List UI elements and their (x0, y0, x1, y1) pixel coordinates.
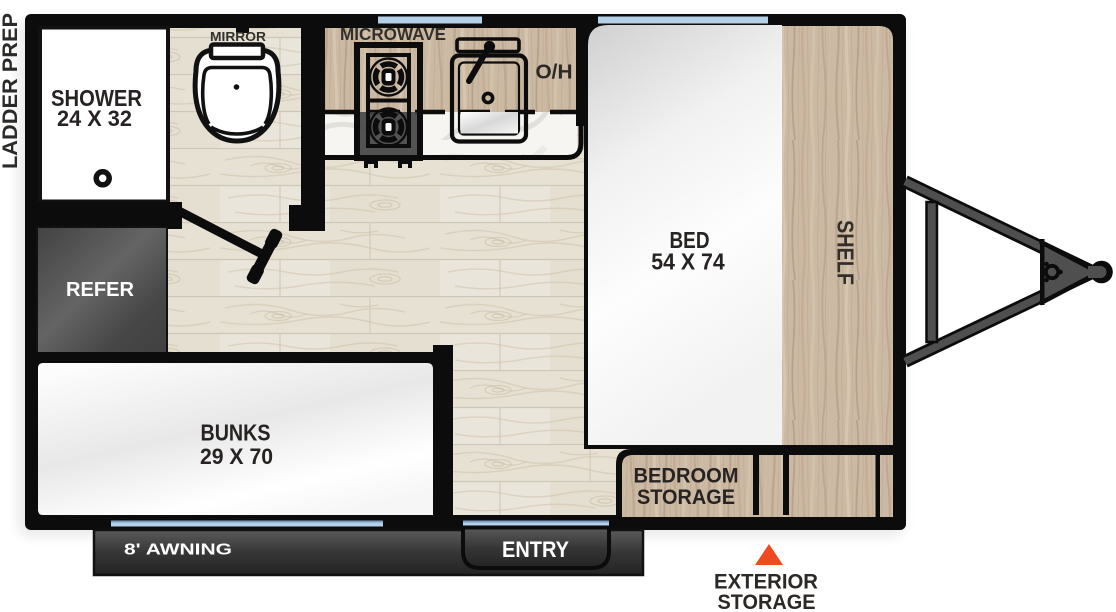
svg-text:O/H: O/H (536, 62, 573, 84)
svg-text:STORAGE: STORAGE (718, 591, 816, 612)
svg-text:LADDER PREP: LADDER PREP (0, 13, 22, 169)
svg-text:54 X 74: 54 X 74 (651, 249, 725, 275)
svg-text:ENTRY: ENTRY (502, 537, 569, 562)
svg-text:BEDROOM: BEDROOM (634, 464, 739, 488)
svg-text:24 X 32: 24 X 32 (57, 106, 132, 131)
svg-text:29 X 70: 29 X 70 (200, 444, 273, 469)
svg-text:MICROWAVE: MICROWAVE (340, 24, 446, 44)
svg-text:8' AWNING: 8' AWNING (124, 542, 232, 559)
svg-text:STORAGE: STORAGE (637, 485, 735, 509)
svg-text:SHELF: SHELF (833, 220, 859, 285)
svg-text:REFER: REFER (66, 279, 135, 301)
svg-text:BUNKS: BUNKS (201, 420, 271, 446)
svg-text:MIRROR: MIRROR (210, 29, 267, 44)
